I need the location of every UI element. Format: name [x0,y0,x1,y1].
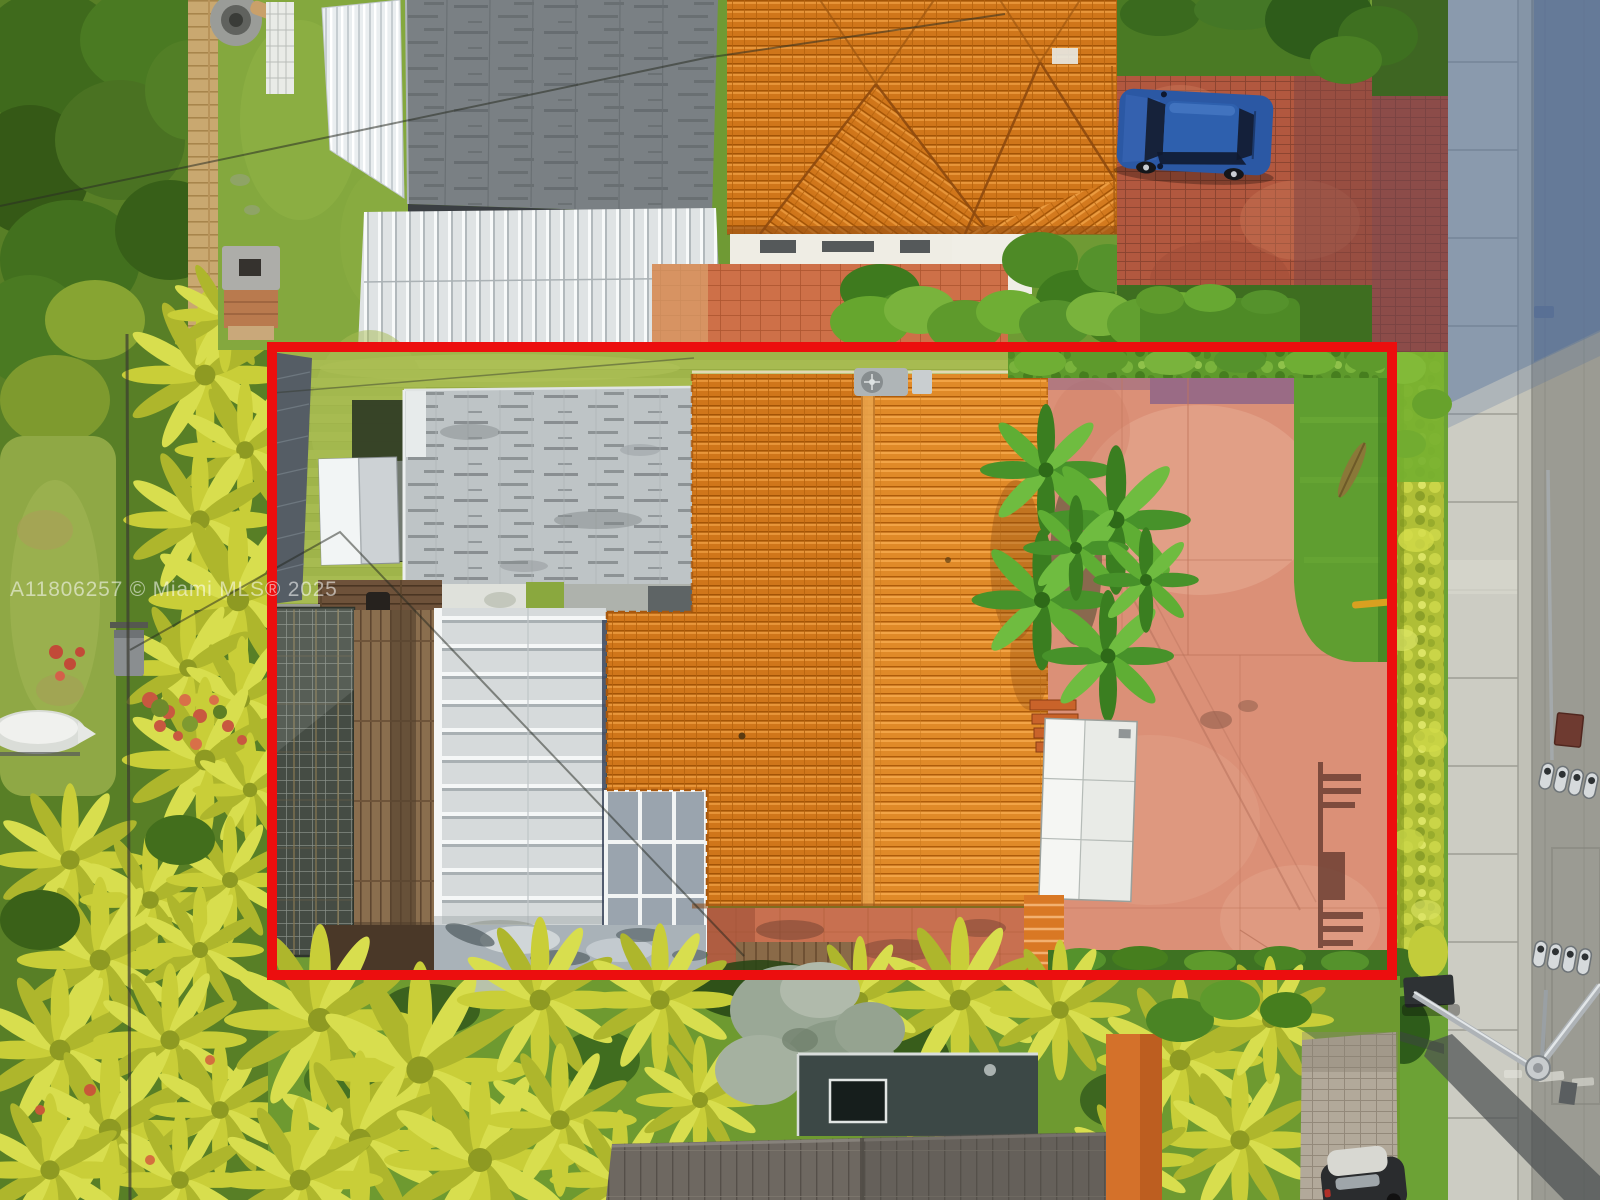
north-neighbor-lot [210,0,1448,374]
screened-pool-enclosure [272,608,354,956]
subject-flat-roof [404,387,694,605]
neighbor-tile-roof [727,0,1117,235]
garden-shed [319,457,408,565]
lattice-panel [266,2,294,94]
front-lawn [1294,372,1392,662]
subject-lot [272,330,1392,976]
pool-bath-roof [1039,718,1137,901]
aerial-photo: A11806257 © Miami MLS® 2025 [0,0,1600,1200]
blue-car [1113,88,1278,188]
outdoor-fireplace [222,246,280,340]
sign-back [1554,713,1583,748]
ac-unit [854,368,932,396]
mls-watermark: A11806257 © Miami MLS® 2025 [10,578,338,602]
teal-flat-roof [798,1054,1038,1136]
